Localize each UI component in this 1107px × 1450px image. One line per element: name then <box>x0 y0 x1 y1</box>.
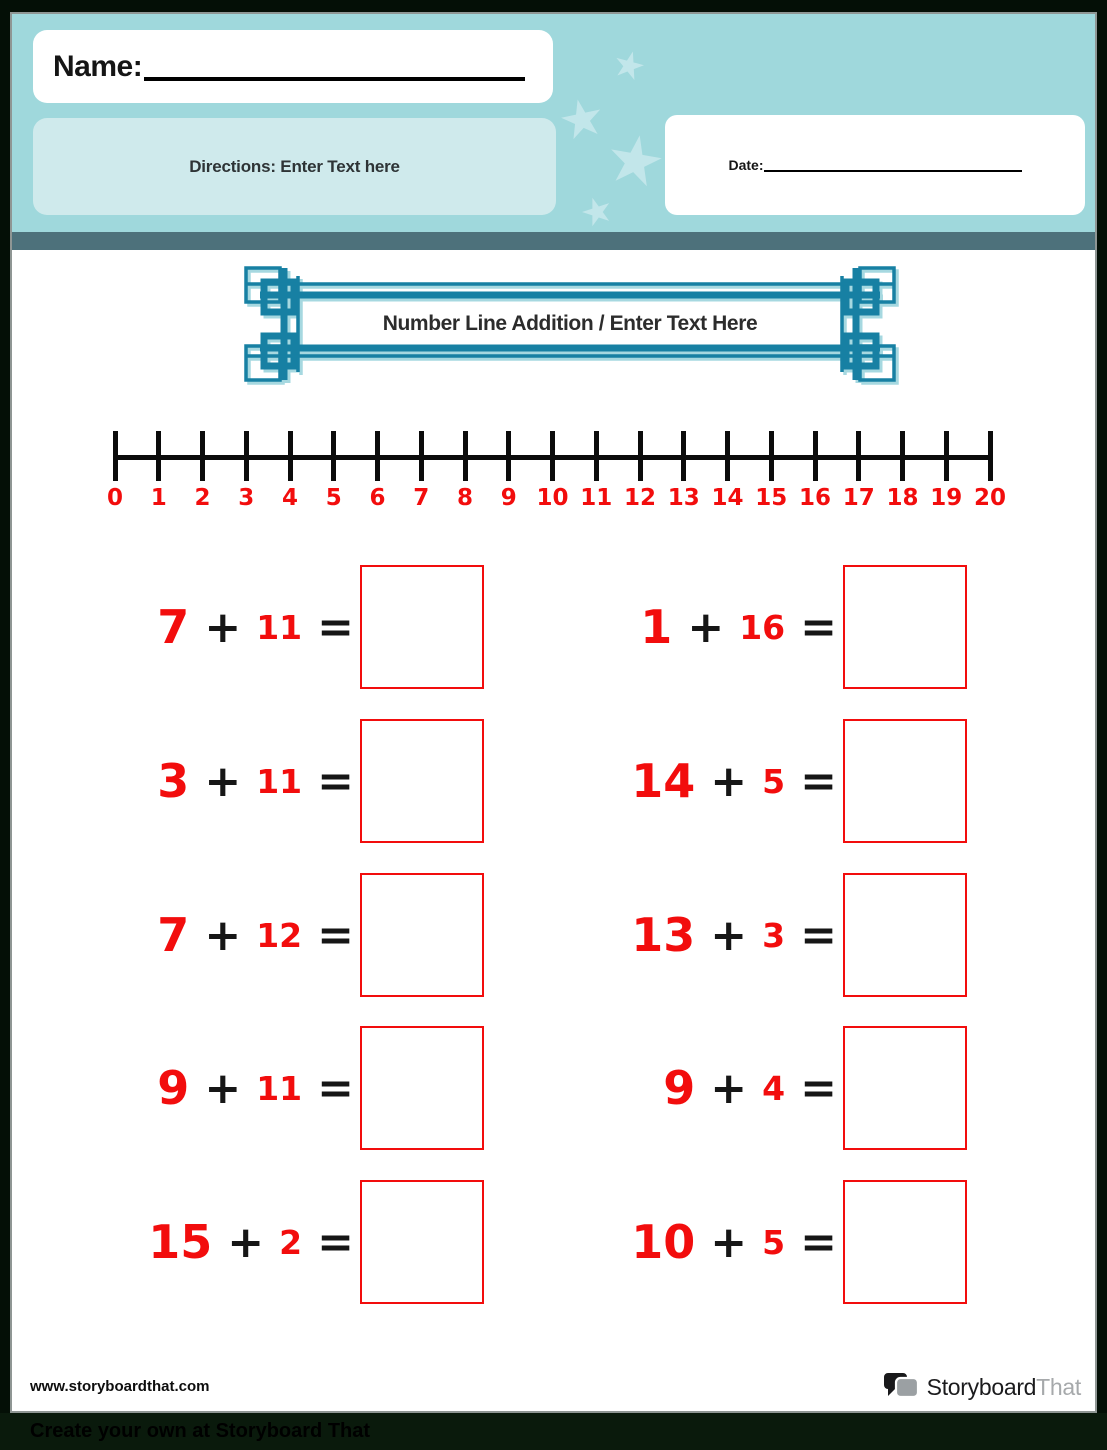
addition-expression: 14+5= <box>631 719 833 843</box>
addition-expression: 1+16= <box>640 565 833 689</box>
name-box: Name: <box>33 30 553 103</box>
answer-box[interactable] <box>360 873 484 997</box>
addition-expression: 9+4= <box>663 1026 833 1150</box>
operand-2: 16 <box>739 608 785 647</box>
number-line-tick <box>900 431 905 481</box>
answer-box[interactable] <box>843 873 967 997</box>
number-line-label: 8 <box>443 485 487 511</box>
directions-box[interactable]: Directions: Enter Text here <box>33 118 556 215</box>
worksheet-page: Name: Directions: Enter Text here Date: <box>10 12 1097 1413</box>
number-line-tick <box>113 431 118 481</box>
number-line-tick <box>638 431 643 481</box>
operand-2: 5 <box>762 1223 785 1262</box>
number-line-label: 4 <box>268 485 312 511</box>
number-line-label: 2 <box>181 485 225 511</box>
star-icon <box>612 48 647 82</box>
worksheet-title[interactable]: Number Line Addition / Enter Text Here <box>240 262 900 386</box>
answer-box[interactable] <box>360 1026 484 1150</box>
number-line-tick <box>813 431 818 481</box>
number-line-label: 10 <box>531 485 575 511</box>
number-line-label: 5 <box>312 485 356 511</box>
equals-sign: = <box>800 910 837 961</box>
name-label: Name: <box>53 50 142 84</box>
answer-box[interactable] <box>843 1180 967 1304</box>
plus-sign: + <box>710 1063 747 1114</box>
plus-sign: + <box>204 602 241 653</box>
number-line-label: 20 <box>968 485 1012 511</box>
operand-1: 15 <box>148 1215 212 1269</box>
equals-sign: = <box>317 1217 354 1268</box>
logo-text: StoryboardThat <box>927 1374 1081 1401</box>
number-line-label: 1 <box>137 485 181 511</box>
bottom-bar-text: Create your own at Storyboard That <box>30 1420 370 1443</box>
number-line-label: 9 <box>487 485 531 511</box>
addition-expression: 15+2= <box>148 1180 350 1304</box>
operand-1: 13 <box>631 908 695 962</box>
number-line-label: 17 <box>837 485 881 511</box>
addition-expression: 10+5= <box>631 1180 833 1304</box>
number-line-label: 0 <box>93 485 137 511</box>
number-line-label: 13 <box>662 485 706 511</box>
operand-2: 11 <box>256 608 302 647</box>
answer-box[interactable] <box>360 719 484 843</box>
star-icon <box>606 131 665 188</box>
speech-bubbles-icon <box>883 1372 920 1403</box>
title-banner: Number Line Addition / Enter Text Here <box>240 262 900 386</box>
number-line-tick <box>681 431 686 481</box>
date-input-line[interactable] <box>764 159 1022 172</box>
plus-sign: + <box>710 910 747 961</box>
plus-sign: + <box>204 1063 241 1114</box>
addition-expression: 3+11= <box>157 719 350 843</box>
directions-text[interactable]: Directions: Enter Text here <box>189 157 400 177</box>
equals-sign: = <box>317 756 354 807</box>
number-line-tick <box>944 431 949 481</box>
plus-sign: + <box>687 602 724 653</box>
number-line-tick <box>156 431 161 481</box>
operand-2: 4 <box>762 1069 785 1108</box>
number-line-tick <box>200 431 205 481</box>
number-line-tick <box>244 431 249 481</box>
date-label: Date: <box>728 157 763 173</box>
number-line-label: 16 <box>793 485 837 511</box>
number-line-tick <box>419 431 424 481</box>
number-line-label: 19 <box>924 485 968 511</box>
operand-2: 2 <box>279 1223 302 1262</box>
number-line-tick <box>725 431 730 481</box>
answer-box[interactable] <box>360 1180 484 1304</box>
number-line-tick <box>856 431 861 481</box>
equals-sign: = <box>317 910 354 961</box>
star-icon <box>579 193 615 228</box>
operand-1: 14 <box>631 754 695 808</box>
number-line-label: 6 <box>356 485 400 511</box>
operand-1: 1 <box>640 600 672 654</box>
number-line-label: 18 <box>881 485 925 511</box>
equals-sign: = <box>800 1217 837 1268</box>
number-line-label: 3 <box>224 485 268 511</box>
number-line-tick <box>988 431 993 481</box>
operand-2: 5 <box>762 762 785 801</box>
operand-2: 3 <box>762 916 785 955</box>
operand-2: 11 <box>256 1069 302 1108</box>
addition-expression: 9+11= <box>157 1026 350 1150</box>
number-line-tick <box>550 431 555 481</box>
number-line-tick <box>506 431 511 481</box>
number-line-label: 11 <box>574 485 618 511</box>
number-line: 01234567891011121314151617181920 <box>12 431 1095 541</box>
equals-sign: = <box>800 756 837 807</box>
operand-1: 9 <box>663 1061 695 1115</box>
date-box: Date: <box>665 115 1085 215</box>
equals-sign: = <box>317 1063 354 1114</box>
operand-1: 10 <box>631 1215 695 1269</box>
answer-box[interactable] <box>843 719 967 843</box>
number-line-tick <box>331 431 336 481</box>
number-line-tick <box>594 431 599 481</box>
answer-box[interactable] <box>360 565 484 689</box>
operand-2: 12 <box>256 916 302 955</box>
answer-box[interactable] <box>843 565 967 689</box>
plus-sign: + <box>204 910 241 961</box>
name-input-line[interactable] <box>144 77 525 81</box>
number-line-label: 15 <box>749 485 793 511</box>
number-line-tick <box>463 431 468 481</box>
divider-bar <box>12 232 1095 250</box>
header-band: Name: Directions: Enter Text here Date: <box>12 14 1095 232</box>
website-url: www.storyboardthat.com <box>30 1378 209 1395</box>
number-line-tick <box>375 431 380 481</box>
equals-sign: = <box>800 1063 837 1114</box>
operand-1: 7 <box>157 600 189 654</box>
addition-expression: 13+3= <box>631 873 833 997</box>
plus-sign: + <box>227 1217 264 1268</box>
operand-1: 9 <box>157 1061 189 1115</box>
number-line-tick <box>288 431 293 481</box>
bottom-bar: Create your own at Storyboard That <box>0 1413 1107 1450</box>
number-line-label: 12 <box>618 485 662 511</box>
storyboardthat-logo: StoryboardThat <box>883 1372 1081 1403</box>
operand-1: 7 <box>157 908 189 962</box>
answer-box[interactable] <box>843 1026 967 1150</box>
equals-sign: = <box>800 602 837 653</box>
operand-2: 11 <box>256 762 302 801</box>
addition-expression: 7+12= <box>157 873 350 997</box>
number-line-label: 7 <box>399 485 443 511</box>
addition-expression: 7+11= <box>157 565 350 689</box>
number-line-tick <box>769 431 774 481</box>
equals-sign: = <box>317 602 354 653</box>
number-line-label: 14 <box>706 485 750 511</box>
plus-sign: + <box>710 1217 747 1268</box>
operand-1: 3 <box>157 754 189 808</box>
star-icon <box>558 95 605 140</box>
plus-sign: + <box>710 756 747 807</box>
plus-sign: + <box>204 756 241 807</box>
